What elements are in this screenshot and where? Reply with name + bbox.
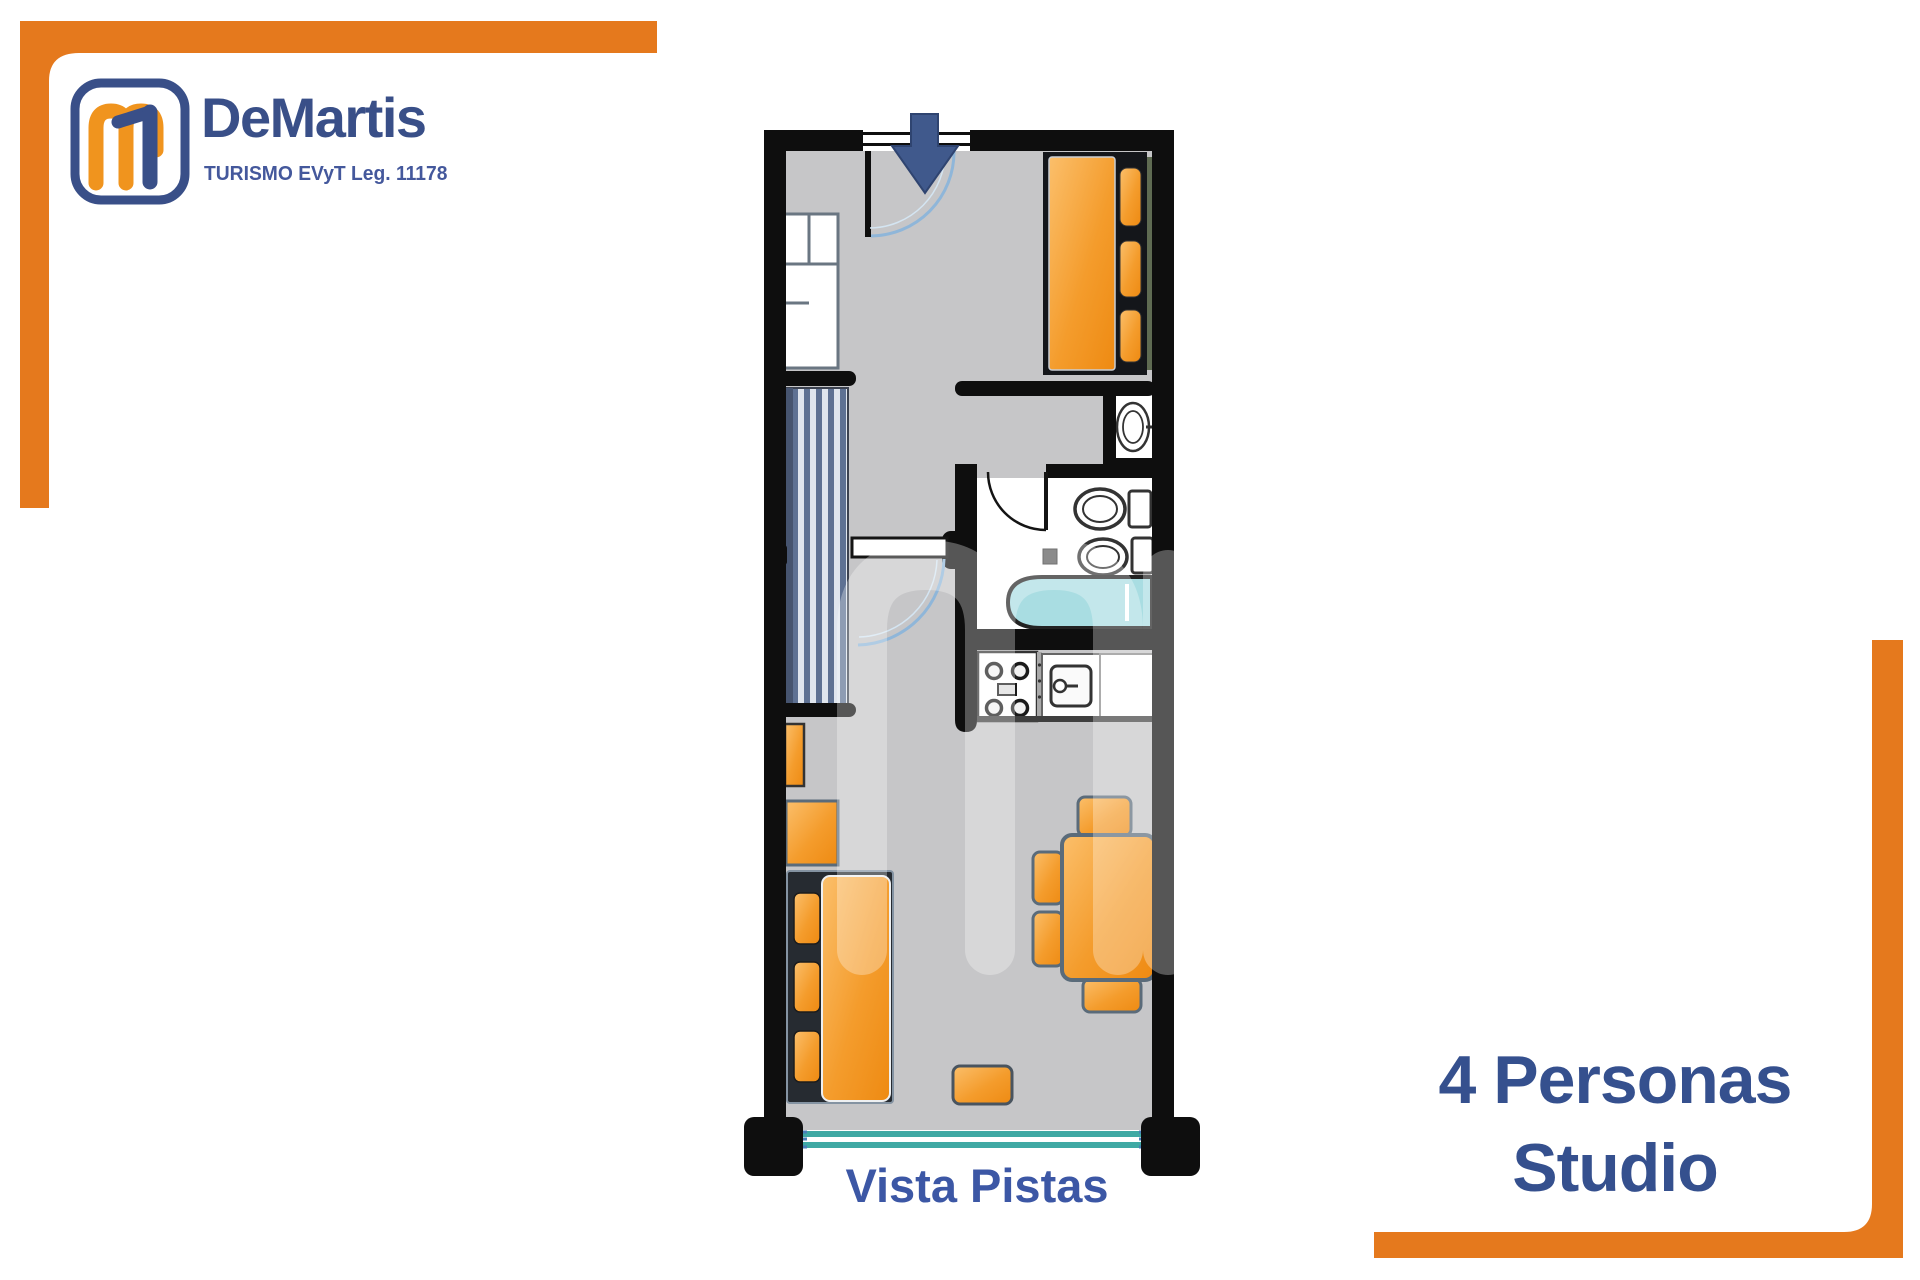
brand-tagline: TURISMO EVyT Leg. 11178 xyxy=(204,162,447,186)
flyer-page: DeMartis TURISMO EVyT Leg. 11178 Vista P… xyxy=(0,0,1920,1280)
logo-icon xyxy=(75,83,185,200)
wall-shelf xyxy=(785,724,804,786)
caption-line-occupancy: 4 Personas xyxy=(1360,1036,1870,1124)
side-table xyxy=(786,801,838,865)
toilet-icon xyxy=(1075,489,1151,529)
bed-pillows xyxy=(1120,168,1141,362)
entry-closet xyxy=(781,214,838,368)
balcony-window-icon xyxy=(787,1131,1159,1148)
floorplan xyxy=(744,114,1200,1176)
double-bed xyxy=(1043,152,1152,375)
ottoman xyxy=(953,1066,1012,1104)
brand-name: DeMartis xyxy=(201,88,426,148)
view-label: Vista Pistas xyxy=(730,1160,1224,1212)
sofa-cushions xyxy=(794,893,820,1082)
caption-line-unit-type: Studio xyxy=(1360,1124,1870,1212)
caption: 4 Personas Studio xyxy=(1360,1036,1870,1212)
